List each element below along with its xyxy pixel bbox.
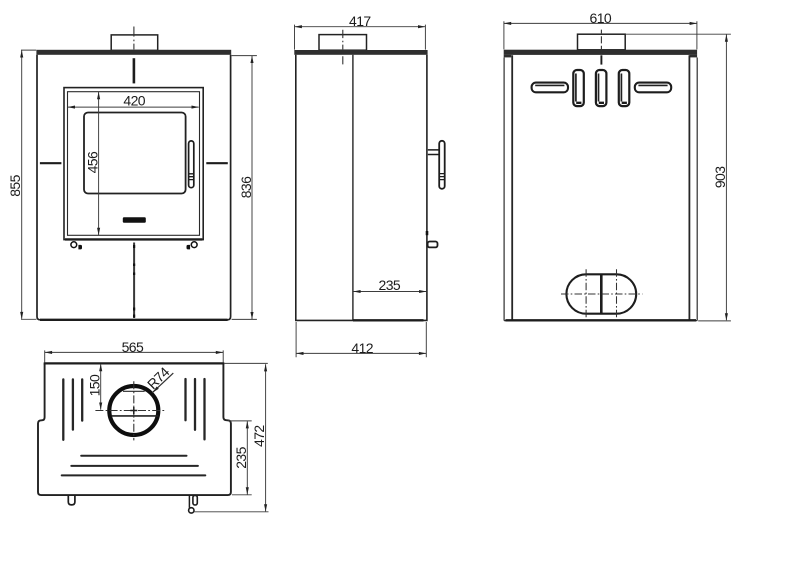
svg-text:150: 150	[86, 374, 102, 396]
svg-text:420: 420	[123, 93, 145, 109]
svg-text:903: 903	[712, 166, 728, 188]
svg-text:472: 472	[251, 425, 267, 447]
svg-text:417: 417	[349, 13, 371, 29]
svg-text:235: 235	[233, 446, 249, 468]
svg-text:836: 836	[238, 176, 254, 198]
svg-text:456: 456	[84, 151, 100, 173]
svg-text:235: 235	[379, 277, 401, 293]
svg-text:R74: R74	[144, 363, 173, 392]
svg-text:610: 610	[590, 10, 612, 26]
svg-text:412: 412	[351, 340, 373, 356]
svg-text:855: 855	[7, 174, 23, 196]
svg-text:565: 565	[122, 339, 144, 355]
